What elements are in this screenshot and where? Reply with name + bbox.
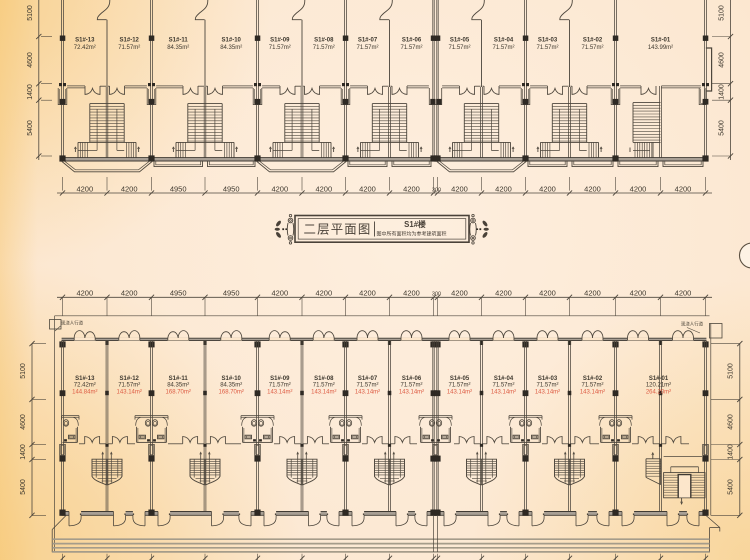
svg-text:S1#-13: S1#-13 (75, 376, 95, 382)
svg-text:71.57m²: 71.57m² (356, 383, 378, 389)
svg-text:4200: 4200 (121, 184, 138, 193)
svg-text:4200: 4200 (121, 289, 138, 298)
svg-text:71.57m²: 71.57m² (400, 45, 422, 51)
svg-text:4950: 4950 (170, 289, 187, 298)
svg-text:S1#楼: S1#楼 (404, 219, 426, 229)
svg-text:1400: 1400 (20, 444, 27, 460)
svg-text:1400: 1400 (719, 84, 726, 100)
svg-text:S1#-12: S1#-12 (120, 376, 140, 382)
svg-text:S1#-01: S1#-01 (651, 37, 671, 43)
svg-text:120.21m²: 120.21m² (646, 383, 671, 389)
svg-text:5100: 5100 (27, 5, 34, 21)
svg-text:143.14m²: 143.14m² (311, 389, 336, 395)
svg-text:143.14m²: 143.14m² (355, 389, 380, 395)
svg-text:4950: 4950 (223, 184, 240, 193)
svg-text:5400: 5400 (27, 120, 34, 136)
svg-text:4200: 4200 (359, 184, 376, 193)
svg-text:1400: 1400 (728, 444, 735, 460)
svg-text:71.57m²: 71.57m² (492, 45, 514, 51)
svg-text:4950: 4950 (223, 289, 240, 298)
svg-text:143.14m²: 143.14m² (117, 389, 142, 395)
svg-text:143.14m²: 143.14m² (580, 389, 605, 395)
svg-text:4200: 4200 (539, 184, 556, 193)
svg-text:图中所有面积均为参考建筑面积: 图中所有面积均为参考建筑面积 (376, 230, 446, 237)
svg-text:143.14m²: 143.14m² (535, 389, 560, 395)
svg-text:S1#-04: S1#-04 (494, 37, 514, 43)
svg-text:71.57m²: 71.57m² (118, 383, 140, 389)
svg-text:71.57m²: 71.57m² (492, 383, 514, 389)
svg-text:4200: 4200 (675, 289, 692, 298)
svg-text:4200: 4200 (76, 184, 93, 193)
svg-text:71.57m²: 71.57m² (269, 383, 291, 389)
svg-text:S1#-11: S1#-11 (169, 37, 189, 43)
svg-text:1400: 1400 (27, 84, 34, 100)
svg-text:144.84m²: 144.84m² (72, 389, 97, 395)
svg-text:71.57m²: 71.57m² (400, 383, 422, 389)
svg-text:71.57m²: 71.57m² (581, 45, 603, 51)
svg-text:143.99m²: 143.99m² (648, 45, 673, 51)
svg-text:S1#-09: S1#-09 (270, 376, 290, 382)
svg-text:4600: 4600 (20, 414, 27, 430)
svg-text:4200: 4200 (315, 289, 332, 298)
svg-text:S1#-03: S1#-03 (538, 376, 558, 382)
svg-text:5100: 5100 (20, 363, 27, 379)
svg-text:二层平面图: 二层平面图 (304, 223, 372, 237)
svg-text:S1#-11: S1#-11 (169, 376, 189, 382)
svg-text:4200: 4200 (271, 184, 288, 193)
svg-text:S1#-03: S1#-03 (538, 37, 558, 43)
svg-text:168.70m²: 168.70m² (219, 389, 244, 395)
svg-text:S1#-10: S1#-10 (222, 376, 242, 382)
svg-text:S1#-02: S1#-02 (583, 376, 603, 382)
svg-text:S1#-08: S1#-08 (314, 376, 334, 382)
svg-text:5100: 5100 (728, 363, 735, 379)
svg-text:4950: 4950 (170, 184, 187, 193)
svg-text:143.14m²: 143.14m² (491, 389, 516, 395)
svg-text:168.70m²: 168.70m² (166, 389, 191, 395)
svg-text:5100: 5100 (719, 5, 726, 21)
svg-text:84.35m²: 84.35m² (220, 45, 242, 51)
svg-text:5400: 5400 (20, 479, 27, 495)
svg-text:71.57m²: 71.57m² (536, 45, 558, 51)
svg-text:4200: 4200 (451, 184, 468, 193)
svg-text:4200: 4200 (403, 184, 420, 193)
svg-text:4200: 4200 (495, 184, 512, 193)
svg-text:4200: 4200 (584, 184, 601, 193)
svg-text:S1#-05: S1#-05 (450, 37, 470, 43)
svg-text:4600: 4600 (719, 52, 726, 68)
svg-text:S1#-06: S1#-06 (402, 37, 422, 43)
svg-text:S1#-13: S1#-13 (75, 37, 95, 43)
svg-text:300: 300 (432, 292, 441, 298)
svg-text:S1#-02: S1#-02 (583, 37, 603, 43)
svg-text:71.57m²: 71.57m² (581, 383, 603, 389)
svg-text:S1#-01: S1#-01 (649, 376, 669, 382)
svg-text:84.35m²: 84.35m² (167, 45, 189, 51)
svg-text:现浇人行道: 现浇人行道 (681, 321, 704, 328)
svg-text:4200: 4200 (630, 184, 647, 193)
svg-text:4200: 4200 (271, 289, 288, 298)
svg-text:4200: 4200 (630, 289, 647, 298)
svg-text:现浇人行道: 现浇人行道 (61, 319, 84, 326)
svg-text:4600: 4600 (728, 414, 735, 430)
svg-text:71.57m²: 71.57m² (313, 383, 335, 389)
svg-text:4200: 4200 (315, 184, 332, 193)
svg-text:4600: 4600 (27, 52, 34, 68)
svg-text:S1#-05: S1#-05 (450, 376, 470, 382)
svg-text:72.42m²: 72.42m² (74, 45, 96, 51)
svg-text:4200: 4200 (451, 289, 468, 298)
svg-text:264.20m²: 264.20m² (646, 389, 671, 395)
svg-text:71.57m²: 71.57m² (448, 45, 470, 51)
svg-text:143.14m²: 143.14m² (399, 389, 424, 395)
svg-text:4200: 4200 (539, 289, 556, 298)
svg-text:S1#-06: S1#-06 (402, 376, 422, 382)
svg-text:S1#-09: S1#-09 (270, 37, 290, 43)
svg-text:4200: 4200 (584, 289, 601, 298)
svg-text:71.57m²: 71.57m² (118, 45, 140, 51)
svg-text:S1#-07: S1#-07 (358, 376, 378, 382)
svg-text:4200: 4200 (675, 184, 692, 193)
svg-text:84.35m²: 84.35m² (167, 383, 189, 389)
svg-text:S1#-10: S1#-10 (222, 37, 242, 43)
svg-text:143.14m²: 143.14m² (447, 389, 472, 395)
svg-text:S1#-08: S1#-08 (314, 37, 334, 43)
svg-text:84.35m²: 84.35m² (220, 383, 242, 389)
svg-text:5400: 5400 (728, 479, 735, 495)
svg-text:4200: 4200 (495, 289, 512, 298)
svg-text:71.57m²: 71.57m² (356, 45, 378, 51)
svg-text:143.14m²: 143.14m² (267, 389, 292, 395)
svg-text:5400: 5400 (719, 120, 726, 136)
svg-text:4200: 4200 (359, 289, 376, 298)
svg-text:4200: 4200 (76, 289, 93, 298)
svg-text:S1#-07: S1#-07 (358, 37, 378, 43)
svg-text:71.57m²: 71.57m² (313, 45, 335, 51)
svg-text:72.42m²: 72.42m² (74, 383, 96, 389)
svg-text:71.57m²: 71.57m² (536, 383, 558, 389)
svg-text:71.57m²: 71.57m² (448, 383, 470, 389)
svg-text:S1#-12: S1#-12 (120, 37, 140, 43)
svg-text:71.57m²: 71.57m² (269, 45, 291, 51)
svg-text:S1#-04: S1#-04 (494, 376, 514, 382)
svg-text:4200: 4200 (403, 289, 420, 298)
svg-text:300: 300 (432, 187, 441, 193)
